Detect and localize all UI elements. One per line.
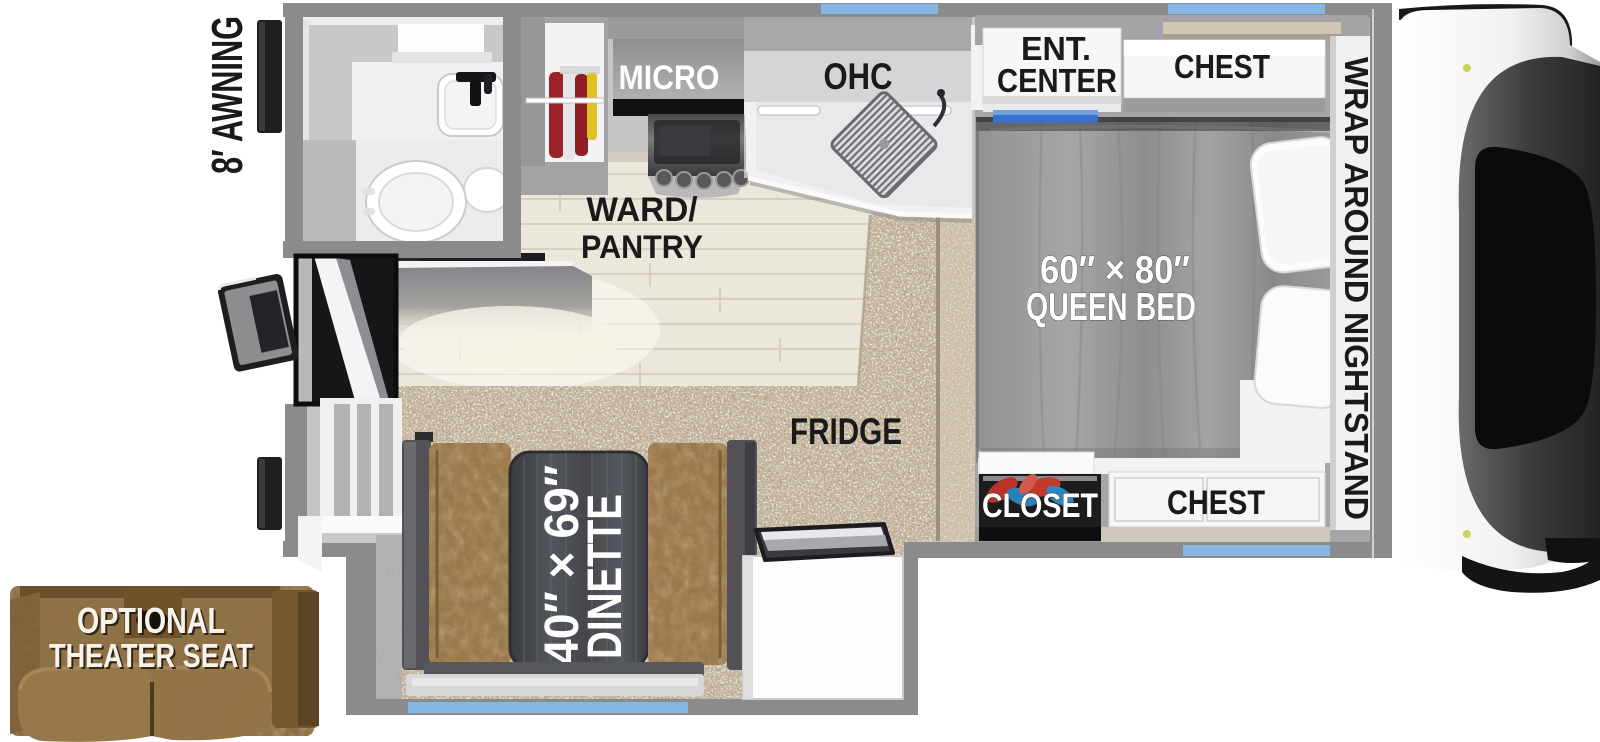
svg-text:OPTIONAL: OPTIONAL (77, 600, 225, 641)
svg-text:DINETTE: DINETTE (579, 494, 632, 659)
svg-text:MICRO: MICRO (619, 59, 720, 97)
svg-text:FRIDGE: FRIDGE (790, 411, 902, 452)
svg-text:CHEST: CHEST (1167, 484, 1265, 522)
svg-text:CENTER: CENTER (997, 62, 1117, 99)
svg-text:THEATER SEAT: THEATER SEAT (49, 637, 253, 674)
svg-text:PANTRY: PANTRY (581, 229, 703, 265)
svg-text:8′ AWNING: 8′ AWNING (203, 16, 252, 174)
svg-text:CLOSET: CLOSET (982, 487, 1098, 525)
svg-text:QUEEN BED: QUEEN BED (1026, 286, 1196, 329)
svg-text:WRAP AROUND NIGHTSTAND: WRAP AROUND NIGHTSTAND (1338, 57, 1375, 520)
svg-text:CHEST: CHEST (1174, 48, 1270, 85)
svg-text:WARD/: WARD/ (587, 191, 699, 229)
svg-text:OHC: OHC (824, 56, 893, 97)
